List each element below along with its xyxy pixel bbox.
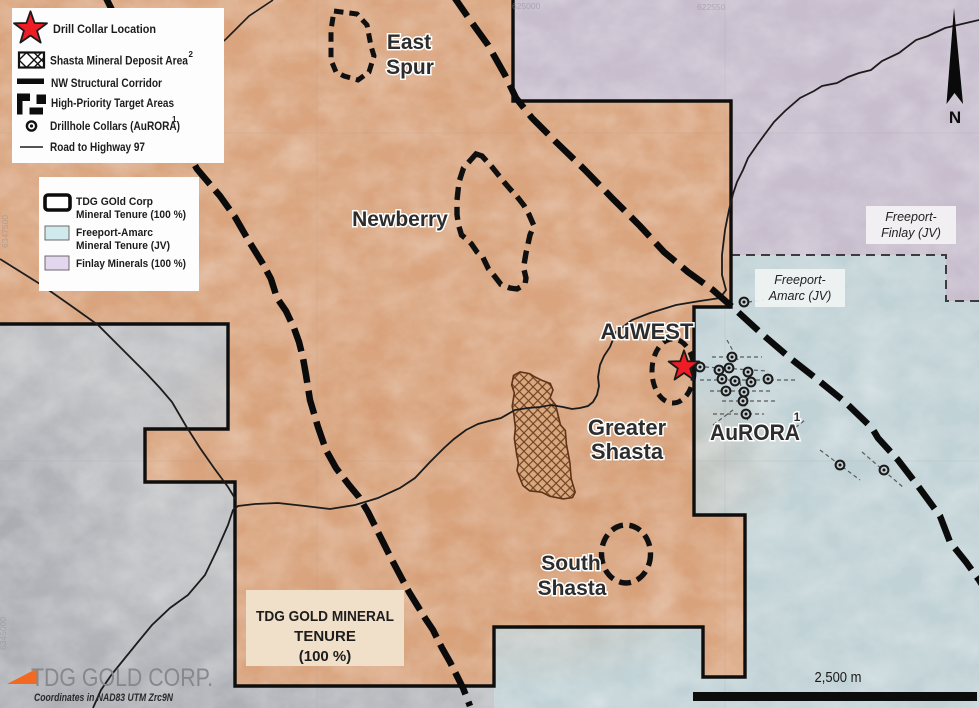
svg-text:TDG GOld Corp: TDG GOld Corp — [76, 196, 153, 208]
svg-text:Greater: Greater — [588, 415, 667, 440]
svg-text:AuWEST: AuWEST — [601, 319, 694, 344]
svg-text:6347500: 6347500 — [0, 215, 10, 248]
svg-text:Amarc (JV): Amarc (JV) — [768, 289, 832, 303]
svg-text:Finlay (JV): Finlay (JV) — [881, 226, 941, 240]
svg-text:1: 1 — [172, 115, 177, 124]
svg-text:625000: 625000 — [512, 1, 541, 11]
svg-text:6345000: 6345000 — [0, 617, 8, 650]
svg-text:TDG GOLD MINERAL: TDG GOLD MINERAL — [256, 608, 394, 625]
svg-text:TENURE: TENURE — [294, 628, 356, 645]
svg-text:622550: 622550 — [697, 2, 726, 12]
svg-text:Freeport-: Freeport- — [774, 273, 825, 287]
svg-text:Shasta: Shasta — [538, 577, 607, 600]
svg-text:Newberry: Newberry — [352, 208, 448, 231]
svg-text:Shasta: Shasta — [591, 439, 664, 464]
svg-text:Freeport-Amarc: Freeport-Amarc — [76, 227, 153, 239]
svg-text:Mineral Tenure (100 %): Mineral Tenure (100 %) — [76, 209, 186, 221]
svg-text:NW Structural Corridor: NW Structural Corridor — [51, 78, 162, 90]
svg-text:High-Priority Target Areas: High-Priority Target Areas — [51, 98, 174, 110]
svg-text:Drill Collar Location: Drill Collar Location — [53, 24, 156, 36]
svg-text:N: N — [949, 108, 961, 127]
svg-text:Mineral Tenure (JV): Mineral Tenure (JV) — [76, 240, 170, 252]
svg-text:Freeport-: Freeport- — [885, 210, 936, 224]
svg-text:Road to Highway 97: Road to Highway 97 — [50, 142, 145, 154]
svg-text:2: 2 — [189, 50, 194, 59]
svg-text:Spur: Spur — [386, 56, 434, 79]
svg-text:1: 1 — [794, 410, 801, 424]
svg-text:Drillhole Collars (AuRORA): Drillhole Collars (AuRORA) — [50, 121, 180, 133]
svg-text:2,500 m: 2,500 m — [815, 670, 862, 686]
svg-text:East: East — [387, 31, 431, 54]
svg-text:Coordinates in NAD83 UTM Zrc9N: Coordinates in NAD83 UTM Zrc9N — [34, 692, 174, 704]
svg-text:Shasta Mineral Deposit Area: Shasta Mineral Deposit Area — [50, 56, 189, 68]
svg-text:TDG GOLD CORP.: TDG GOLD CORP. — [31, 664, 213, 692]
svg-text:(100 %): (100 %) — [299, 648, 352, 665]
svg-text:Finlay Minerals (100 %): Finlay Minerals (100 %) — [76, 258, 186, 270]
svg-text:South: South — [541, 552, 600, 575]
svg-text:AuRORA: AuRORA — [710, 420, 800, 445]
